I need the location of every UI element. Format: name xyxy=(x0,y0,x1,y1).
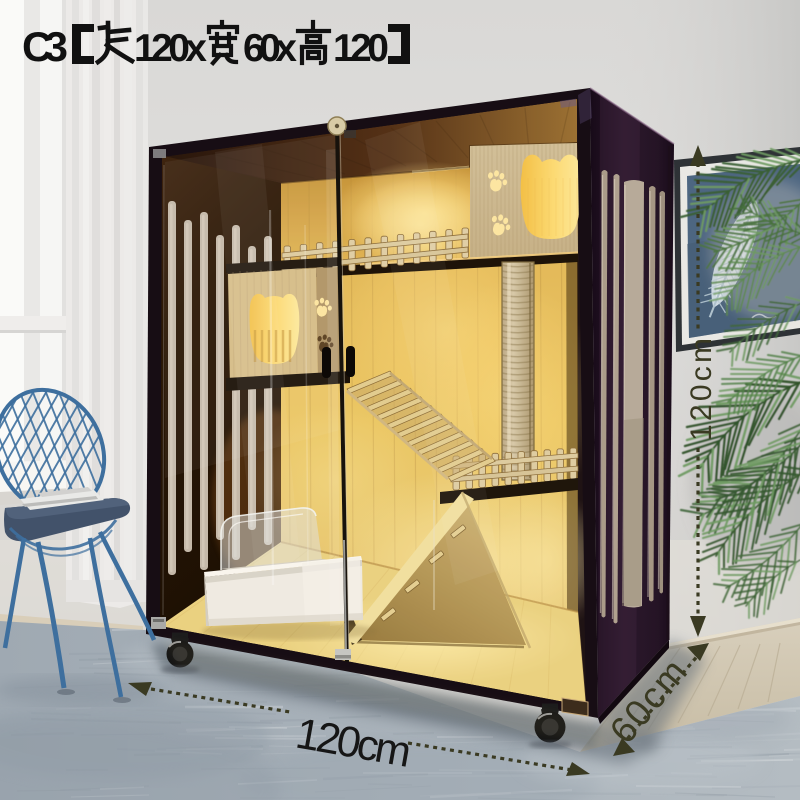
svg-text:C3: C3 xyxy=(22,23,68,70)
svg-text:60x: 60x xyxy=(243,27,297,70)
svg-text:120x: 120x xyxy=(134,27,207,70)
svg-text:120cm: 120cm xyxy=(685,338,718,441)
svg-text:120: 120 xyxy=(333,27,389,70)
